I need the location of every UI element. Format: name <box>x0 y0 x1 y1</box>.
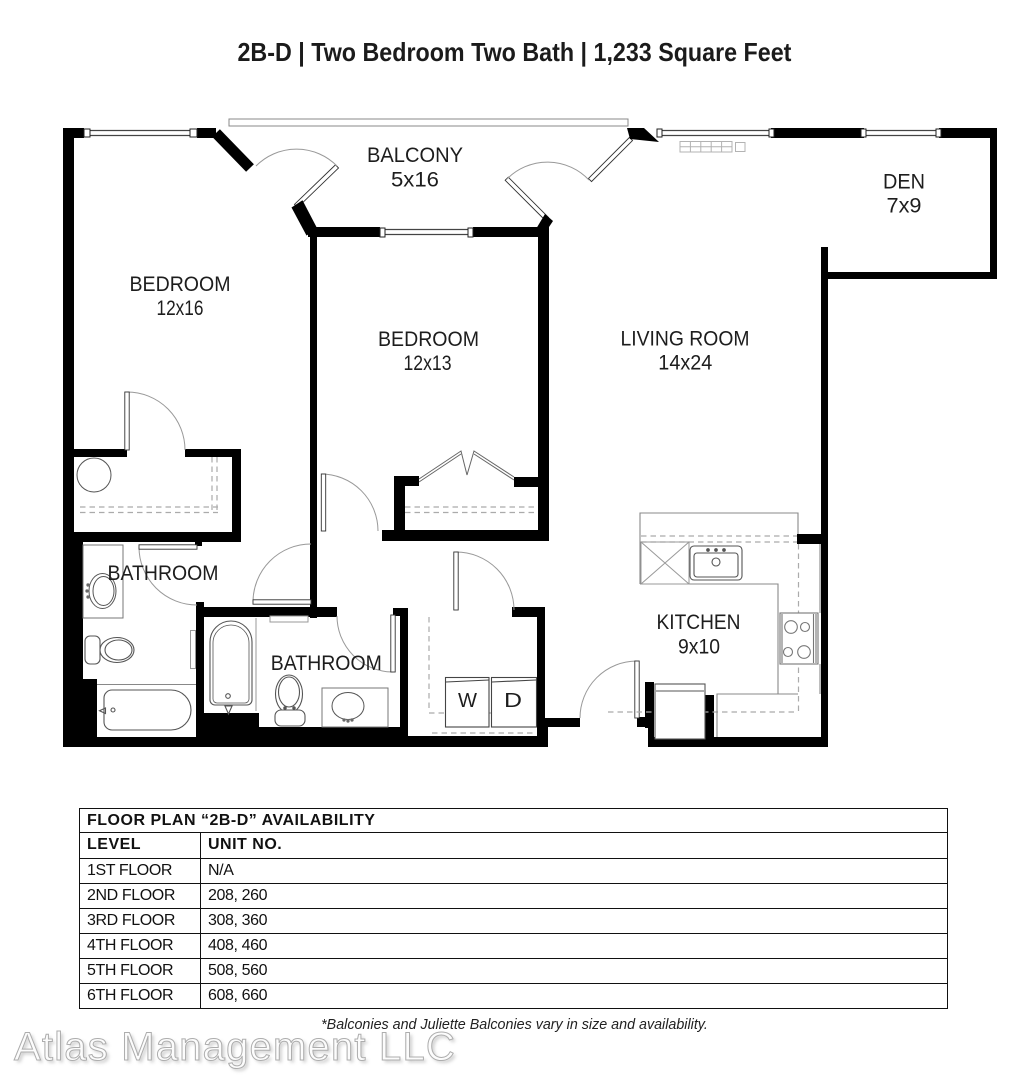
svg-text:14x24: 14x24 <box>658 352 712 375</box>
svg-text:DEN: DEN <box>883 171 925 194</box>
svg-text:12x13: 12x13 <box>404 352 452 375</box>
svg-text:7x9: 7x9 <box>887 195 922 218</box>
svg-text:5x16: 5x16 <box>391 169 439 192</box>
svg-text:D: D <box>504 690 522 712</box>
svg-text:9x10: 9x10 <box>678 636 720 659</box>
svg-text:BEDROOM: BEDROOM <box>130 273 231 296</box>
svg-text:BATHROOM: BATHROOM <box>271 652 382 675</box>
svg-text:LIVING ROOM: LIVING ROOM <box>621 328 750 351</box>
svg-text:BEDROOM: BEDROOM <box>378 328 479 351</box>
svg-text:BALCONY: BALCONY <box>367 144 463 167</box>
svg-text:12x16: 12x16 <box>157 297 204 320</box>
svg-text:KITCHEN: KITCHEN <box>657 611 741 634</box>
svg-text:BATHROOM: BATHROOM <box>108 562 219 585</box>
svg-text:W: W <box>458 690 477 712</box>
